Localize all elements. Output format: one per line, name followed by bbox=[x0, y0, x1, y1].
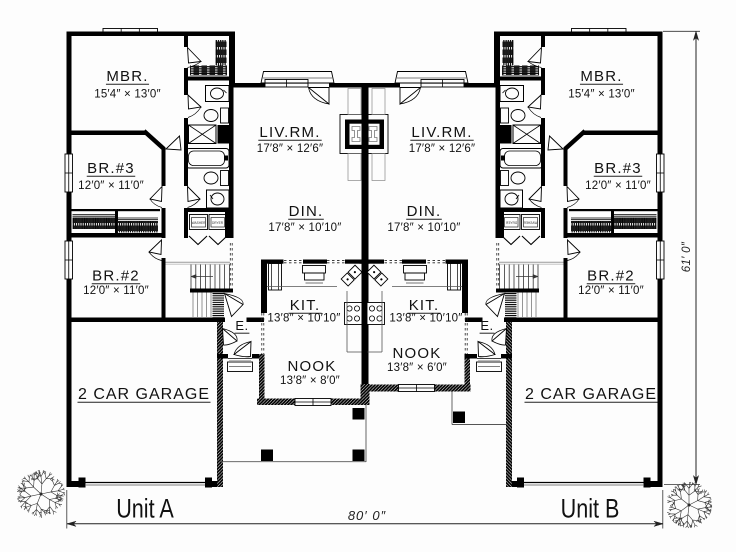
svg-text:12′0″ × 11′0″: 12′0″ × 11′0″ bbox=[585, 180, 651, 192]
svg-text:2 CAR GARAGE: 2 CAR GARAGE bbox=[525, 386, 657, 403]
svg-text:17′8″ × 12′6″: 17′8″ × 12′6″ bbox=[409, 143, 476, 155]
svg-text:12′0″ × 11′0″: 12′0″ × 11′0″ bbox=[83, 285, 149, 297]
svg-text:NOOK: NOOK bbox=[288, 358, 337, 375]
svg-text:DRYER: DRYER bbox=[212, 221, 224, 225]
svg-text:MBR.: MBR. bbox=[106, 68, 148, 85]
svg-text:12′0″ × 11′0″: 12′0″ × 11′0″ bbox=[78, 180, 144, 192]
svg-text:15′4″ × 13′0″: 15′4″ × 13′0″ bbox=[568, 89, 635, 101]
svg-text:17′8″ × 10′10″: 17′8″ × 10′10″ bbox=[387, 222, 460, 234]
svg-text:17′8″ × 10′10″: 17′8″ × 10′10″ bbox=[268, 222, 341, 234]
svg-text:61′ 0″: 61′ 0″ bbox=[681, 241, 693, 272]
svg-text:Unit A: Unit A bbox=[116, 494, 174, 524]
svg-text:BR.#2: BR.#2 bbox=[587, 268, 635, 285]
svg-text:BR.#3: BR.#3 bbox=[87, 160, 135, 177]
svg-text:E.: E. bbox=[480, 318, 493, 333]
svg-text:Unit B: Unit B bbox=[561, 494, 620, 524]
svg-text:13′8″ × 10′10″: 13′8″ × 10′10″ bbox=[267, 313, 340, 325]
svg-text:LIV.RM.: LIV.RM. bbox=[259, 124, 320, 141]
svg-text:13′8″ × 10′10″: 13′8″ × 10′10″ bbox=[389, 313, 462, 325]
svg-text:13′8″ × 6′0″: 13′8″ × 6′0″ bbox=[387, 362, 447, 374]
svg-text:WASHER: WASHER bbox=[523, 221, 538, 225]
svg-text:DIN.: DIN. bbox=[289, 203, 324, 220]
svg-text:DIN.: DIN. bbox=[407, 203, 442, 220]
svg-text:17′8″ × 12′6″: 17′8″ × 12′6″ bbox=[257, 143, 324, 155]
svg-text:NOOK: NOOK bbox=[393, 345, 442, 362]
svg-text:BR.#2: BR.#2 bbox=[92, 268, 140, 285]
svg-text:15′4″ × 13′0″: 15′4″ × 13′0″ bbox=[94, 89, 161, 101]
svg-text:2 CAR GARAGE: 2 CAR GARAGE bbox=[78, 386, 210, 403]
svg-text:13′8″ × 8′0″: 13′8″ × 8′0″ bbox=[280, 375, 340, 387]
svg-text:12′0″ × 11′0″: 12′0″ × 11′0″ bbox=[578, 285, 644, 297]
svg-text:DRYER: DRYER bbox=[505, 221, 517, 225]
svg-text:MBR.: MBR. bbox=[580, 68, 622, 85]
svg-text:80′ 0″: 80′ 0″ bbox=[348, 508, 386, 523]
svg-text:WASHER: WASHER bbox=[192, 221, 207, 225]
svg-text:E.: E. bbox=[235, 318, 248, 333]
svg-text:KIT.: KIT. bbox=[409, 297, 440, 314]
svg-text:LIV.RM.: LIV.RM. bbox=[411, 124, 472, 141]
svg-text:BR.#3: BR.#3 bbox=[594, 160, 642, 177]
svg-text:KIT.: KIT. bbox=[290, 297, 321, 314]
